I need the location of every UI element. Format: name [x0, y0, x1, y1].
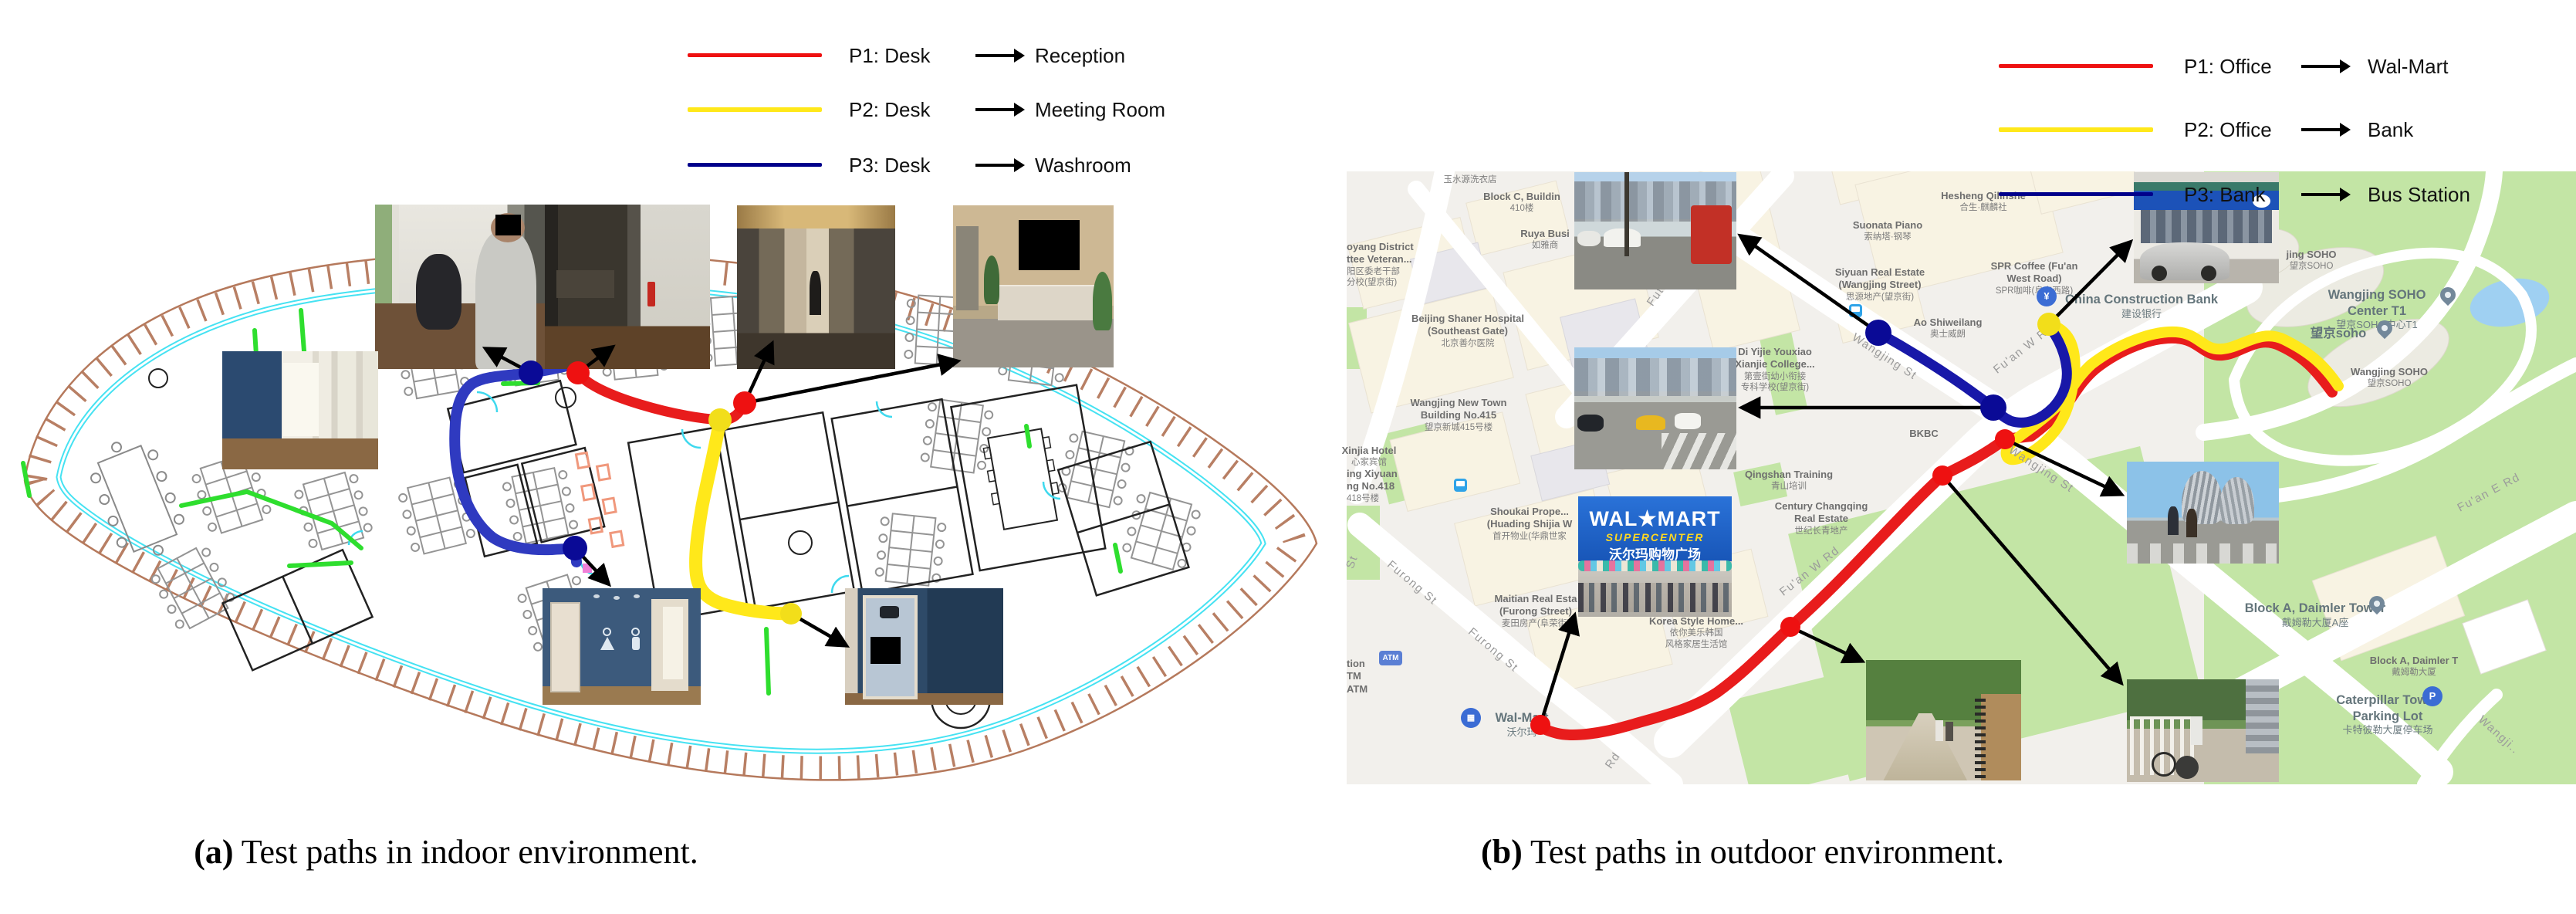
road-label: Wangjing St: [1850, 331, 1919, 383]
legend-source: P2: Office: [2184, 118, 2272, 142]
p1-line-swatch: [1999, 64, 2153, 68]
legend-source: P1: Office: [2184, 55, 2272, 79]
map-label: Siyuan Real Estate(Wangjing Street)思源地产(…: [1835, 266, 1925, 303]
car: [1577, 415, 1604, 432]
door-sign: [880, 606, 899, 619]
censor-box: [870, 637, 901, 664]
arrow-icon: [975, 108, 1016, 111]
arrow-to-sidewalk-photo: [1790, 627, 1861, 661]
plant: [984, 256, 1000, 304]
arrow-to-walmart-photo: [1540, 616, 1574, 725]
caption-b: (b) Test paths in outdoor environment.: [1481, 832, 2004, 872]
caption-a: (a) Test paths in indoor environment.: [194, 832, 698, 872]
map-label: tionTMATM: [1347, 658, 1367, 696]
blue-waypoint-dot: [1980, 394, 2006, 421]
door: [956, 226, 979, 310]
tv-screen: [1019, 220, 1080, 270]
legend-source: P2: Desk: [849, 98, 931, 122]
legend-source: P1: Desk: [849, 44, 931, 68]
desk-bank: [875, 513, 947, 587]
iron-fence: [1975, 699, 1986, 780]
map-label: Century ChangqingReal Estate世纪长青地产: [1775, 500, 1868, 537]
legend-source: P3: Bank: [2184, 183, 2266, 207]
ceiling-lights: [737, 205, 895, 228]
red-truck: [1691, 205, 1732, 264]
magenta-marker: [583, 564, 592, 573]
p2-line-swatch: [688, 107, 822, 112]
caption-b-label: (b): [1481, 833, 1523, 871]
pedestrian: [1946, 722, 1953, 741]
path-p2-yellow: [2006, 324, 2338, 459]
reception-counter: [998, 285, 1104, 320]
bus-stop-icon: [1454, 479, 1467, 492]
photo-intersection-taxi: [1574, 347, 1736, 469]
bank-yuan-icon: ¥: [2037, 286, 2057, 306]
map-label: Suonata Piano索纳塔·钢琴: [1853, 219, 1922, 243]
path-p3-blue: [455, 364, 576, 562]
photo-office-interior-dark: [545, 205, 710, 369]
legend-target: Bank: [2368, 118, 2413, 142]
road-label: Rd: [1603, 750, 1624, 771]
p2-line-swatch: [1999, 127, 2153, 132]
fire-extinguisher: [647, 282, 656, 306]
p3-line-swatch: [688, 163, 822, 167]
brick-wall: [1981, 694, 2021, 780]
atm-icon: ATM: [1379, 651, 1402, 665]
pedestrian: [2191, 716, 2203, 745]
desk-bank: [1056, 429, 1135, 510]
path-p2-yellow: [696, 420, 791, 614]
male-icon: [630, 628, 642, 650]
female-icon: [600, 628, 615, 650]
photo-washroom-entrance: [543, 588, 701, 705]
map-label: Wangjing New TownBuilding No.415望京新城415号…: [1411, 397, 1507, 433]
arrow-to-washroom-photo: [575, 548, 608, 584]
building: [2246, 679, 2279, 753]
door-inner: [663, 607, 684, 679]
buildings: [1574, 358, 1736, 396]
map-label: jing SOHO望京SOHO: [2287, 249, 2337, 273]
legend-row: P2: Office Bank: [1999, 118, 2508, 141]
walmart-sub-text: SUPERCENTER: [1578, 531, 1732, 543]
photo-street-parked-cars: [1574, 172, 1736, 289]
person: [475, 231, 536, 369]
door: [550, 602, 580, 692]
map-pin-icon: [2437, 284, 2459, 306]
road-label: Furong St: [1384, 558, 1440, 608]
desk-bank: [397, 475, 477, 557]
desk-bank: [1121, 489, 1202, 573]
desk-bank: [920, 398, 993, 475]
road-label: St: [1344, 553, 1361, 570]
map-label: BKBC: [1909, 428, 1939, 440]
p3-line-swatch: [1999, 192, 2153, 196]
walkway: [1881, 713, 1975, 780]
arrow-to-meeting-door-photo: [791, 614, 846, 645]
map-label: Xinjia Hotel心家宾馆: [1342, 445, 1397, 469]
pedestrian: [1935, 720, 1943, 741]
indoor-paths: [455, 337, 791, 614]
annotation-arrows: [486, 236, 2130, 725]
legend-row: P3: Bank Bus Station: [1999, 183, 2508, 206]
blue-waypoint-dot: [563, 536, 587, 560]
bicycle-wheels: [2152, 752, 2176, 777]
road-label: Fu'an W Rd: [1777, 543, 1842, 598]
photo-reception-desk: [953, 205, 1114, 367]
p1-line-swatch: [688, 53, 822, 57]
car: [1577, 231, 1600, 246]
map-label: Block A, Daimler Tower戴姆勒大厦A座: [2245, 601, 2385, 629]
pond: [2466, 272, 2554, 333]
map-label: oyang Districtttee Veteran...阳区委老干部分校(望京…: [1347, 241, 1414, 288]
yellow-waypoint-dot: [780, 603, 802, 625]
map-label: 玉水源洗衣店: [1444, 174, 1497, 185]
cyclist: [2168, 506, 2179, 535]
map-label: Korea Style Home...依你美乐韩国风格家居生活馆: [1649, 615, 1743, 650]
caption-b-text: Test paths in outdoor environment.: [1530, 833, 2004, 871]
walmart-cart-icon: ▦: [1461, 708, 1481, 728]
red-waypoint-dot: [1780, 617, 1800, 637]
face-censor-box: [495, 215, 521, 236]
photo-meeting-room-door: [845, 588, 1003, 705]
yellow-waypoint-dot: [708, 408, 732, 432]
arrow-icon: [2301, 193, 2341, 196]
caption-a-text: Test paths in indoor environment.: [242, 833, 698, 871]
arrow-icon: [2301, 65, 2341, 68]
balloon-garland: [1578, 560, 1732, 571]
parking-icon: P: [2422, 686, 2442, 706]
red-waypoint-dot: [1932, 465, 1952, 486]
map-label: Shoukai Prope...(Huading Shijia W首开物业(华鼎…: [1487, 506, 1573, 542]
legend-row: P3: Desk Washroom: [688, 154, 1166, 177]
red-waypoint-dot: [733, 391, 756, 415]
road-label: Furong St: [1465, 625, 1521, 675]
lounge-chairs: [576, 449, 623, 550]
legend-row: P1: Office Wal-Mart: [1999, 55, 2508, 78]
map-label: Di Yijie YouxiaoXianjie College...第壹街幼小衔…: [1735, 346, 1814, 393]
legend-source: P3: Desk: [849, 154, 931, 178]
car: [1604, 228, 1641, 247]
legend-target: Meeting Room: [1035, 98, 1165, 122]
arrow-to-fence-photo: [1942, 476, 2121, 682]
crosswalk-stripes: [2127, 543, 2279, 564]
road-label: Wangji..: [2476, 713, 2522, 757]
person-silhouette: [810, 271, 820, 315]
road-label: Wangjing St: [2006, 444, 2076, 496]
corridor-end-light: [283, 363, 319, 436]
legend-target: Wal-Mart: [2368, 55, 2448, 79]
arrow-icon: [975, 54, 1016, 57]
arrow-icon: [975, 164, 1016, 167]
desk-bank: [292, 469, 374, 553]
map-label: 望京soho: [2311, 326, 2366, 342]
map-label: Ruya Busi如雅商: [1520, 228, 1570, 252]
map-label: ing Xiyuanng No.418418号楼: [1347, 468, 1398, 504]
soho-tower: [2219, 477, 2254, 524]
car-wheels: [2152, 266, 2167, 281]
desk-bank: [148, 543, 237, 633]
road-label: Fu'an E Rd: [2455, 470, 2522, 514]
photo-glass-corridor: [737, 205, 895, 369]
legend-row: P1: Desk Reception: [688, 44, 1166, 67]
walmart-sign: WAL★MART SUPERCENTER 沃尔玛购物广场: [1578, 496, 1732, 561]
map-label: Wal-Mart沃尔玛: [1495, 710, 1548, 739]
legend-target: Bus Station: [2368, 183, 2470, 207]
map-label: Block C, Buildin410楼: [1483, 191, 1560, 215]
yellow-taxi: [1636, 415, 1665, 430]
outdoor-legend: P1: Office Wal-Mart P2: Office Bank P3: …: [1999, 0, 2508, 216]
figure-page: P1: Desk Reception P2: Desk Meeting Room…: [0, 0, 2576, 914]
caption-a-label: (a): [194, 833, 233, 871]
tree-trunk: [1624, 172, 1629, 256]
legend-row: P2: Desk Meeting Room: [688, 98, 1166, 121]
ceiling-lights: [593, 594, 600, 598]
arrow-icon: [2301, 128, 2341, 131]
map-label: Block A, Daimler T戴姆勒大厦: [2370, 655, 2458, 679]
legend-target: Washroom: [1035, 154, 1131, 178]
map-label: Maitian Real Esta(Furong Street)麦田房产(阜荣街…: [1495, 593, 1577, 629]
photo-walmart-supercenter: WAL★MART SUPERCENTER 沃尔玛购物广场: [1578, 496, 1732, 617]
office-chair: [416, 254, 461, 330]
crosswalk-stripes: [1662, 433, 1736, 469]
map-label: China Construction Bank建设银行: [2065, 292, 2218, 320]
white-van: [1675, 413, 1701, 429]
photo-blue-corridor: [222, 351, 378, 469]
bus-stop-icon: [1849, 304, 1862, 317]
map-label: Qingshan Training青山培训: [1745, 469, 1833, 493]
indoor-legend: P1: Desk Reception P2: Desk Meeting Room…: [688, 0, 1166, 193]
desk: [556, 270, 614, 298]
plant: [1093, 272, 1112, 330]
map-label: Beijing Shaner Hospital(Southeast Gate)北…: [1411, 313, 1524, 349]
map-label: Ao Shiweilang奥士威朗: [1914, 317, 1983, 340]
photo-cyclists-soho-towers: [2127, 462, 2279, 564]
map-label: SPR Coffee (Fu'anWest Road)SPR咖啡(阜安西路): [1991, 260, 2078, 296]
photo-office-hallway-person: [375, 205, 545, 369]
photo-fence-bicycles-sidewalk: [2127, 679, 2279, 782]
desk-bank: [502, 465, 579, 546]
walmart-brand-text: WAL★MART: [1578, 507, 1732, 531]
photo-tree-lined-sidewalk: [1866, 660, 2021, 780]
cyclist: [2186, 509, 2197, 537]
crowd: [1578, 583, 1732, 611]
map-label: Wangjing SOHO望京SOHO: [2351, 366, 2428, 390]
conference-table: [82, 429, 193, 567]
road-label: Fu'an W Rd: [1991, 321, 2056, 376]
legend-target: Reception: [1035, 44, 1125, 68]
